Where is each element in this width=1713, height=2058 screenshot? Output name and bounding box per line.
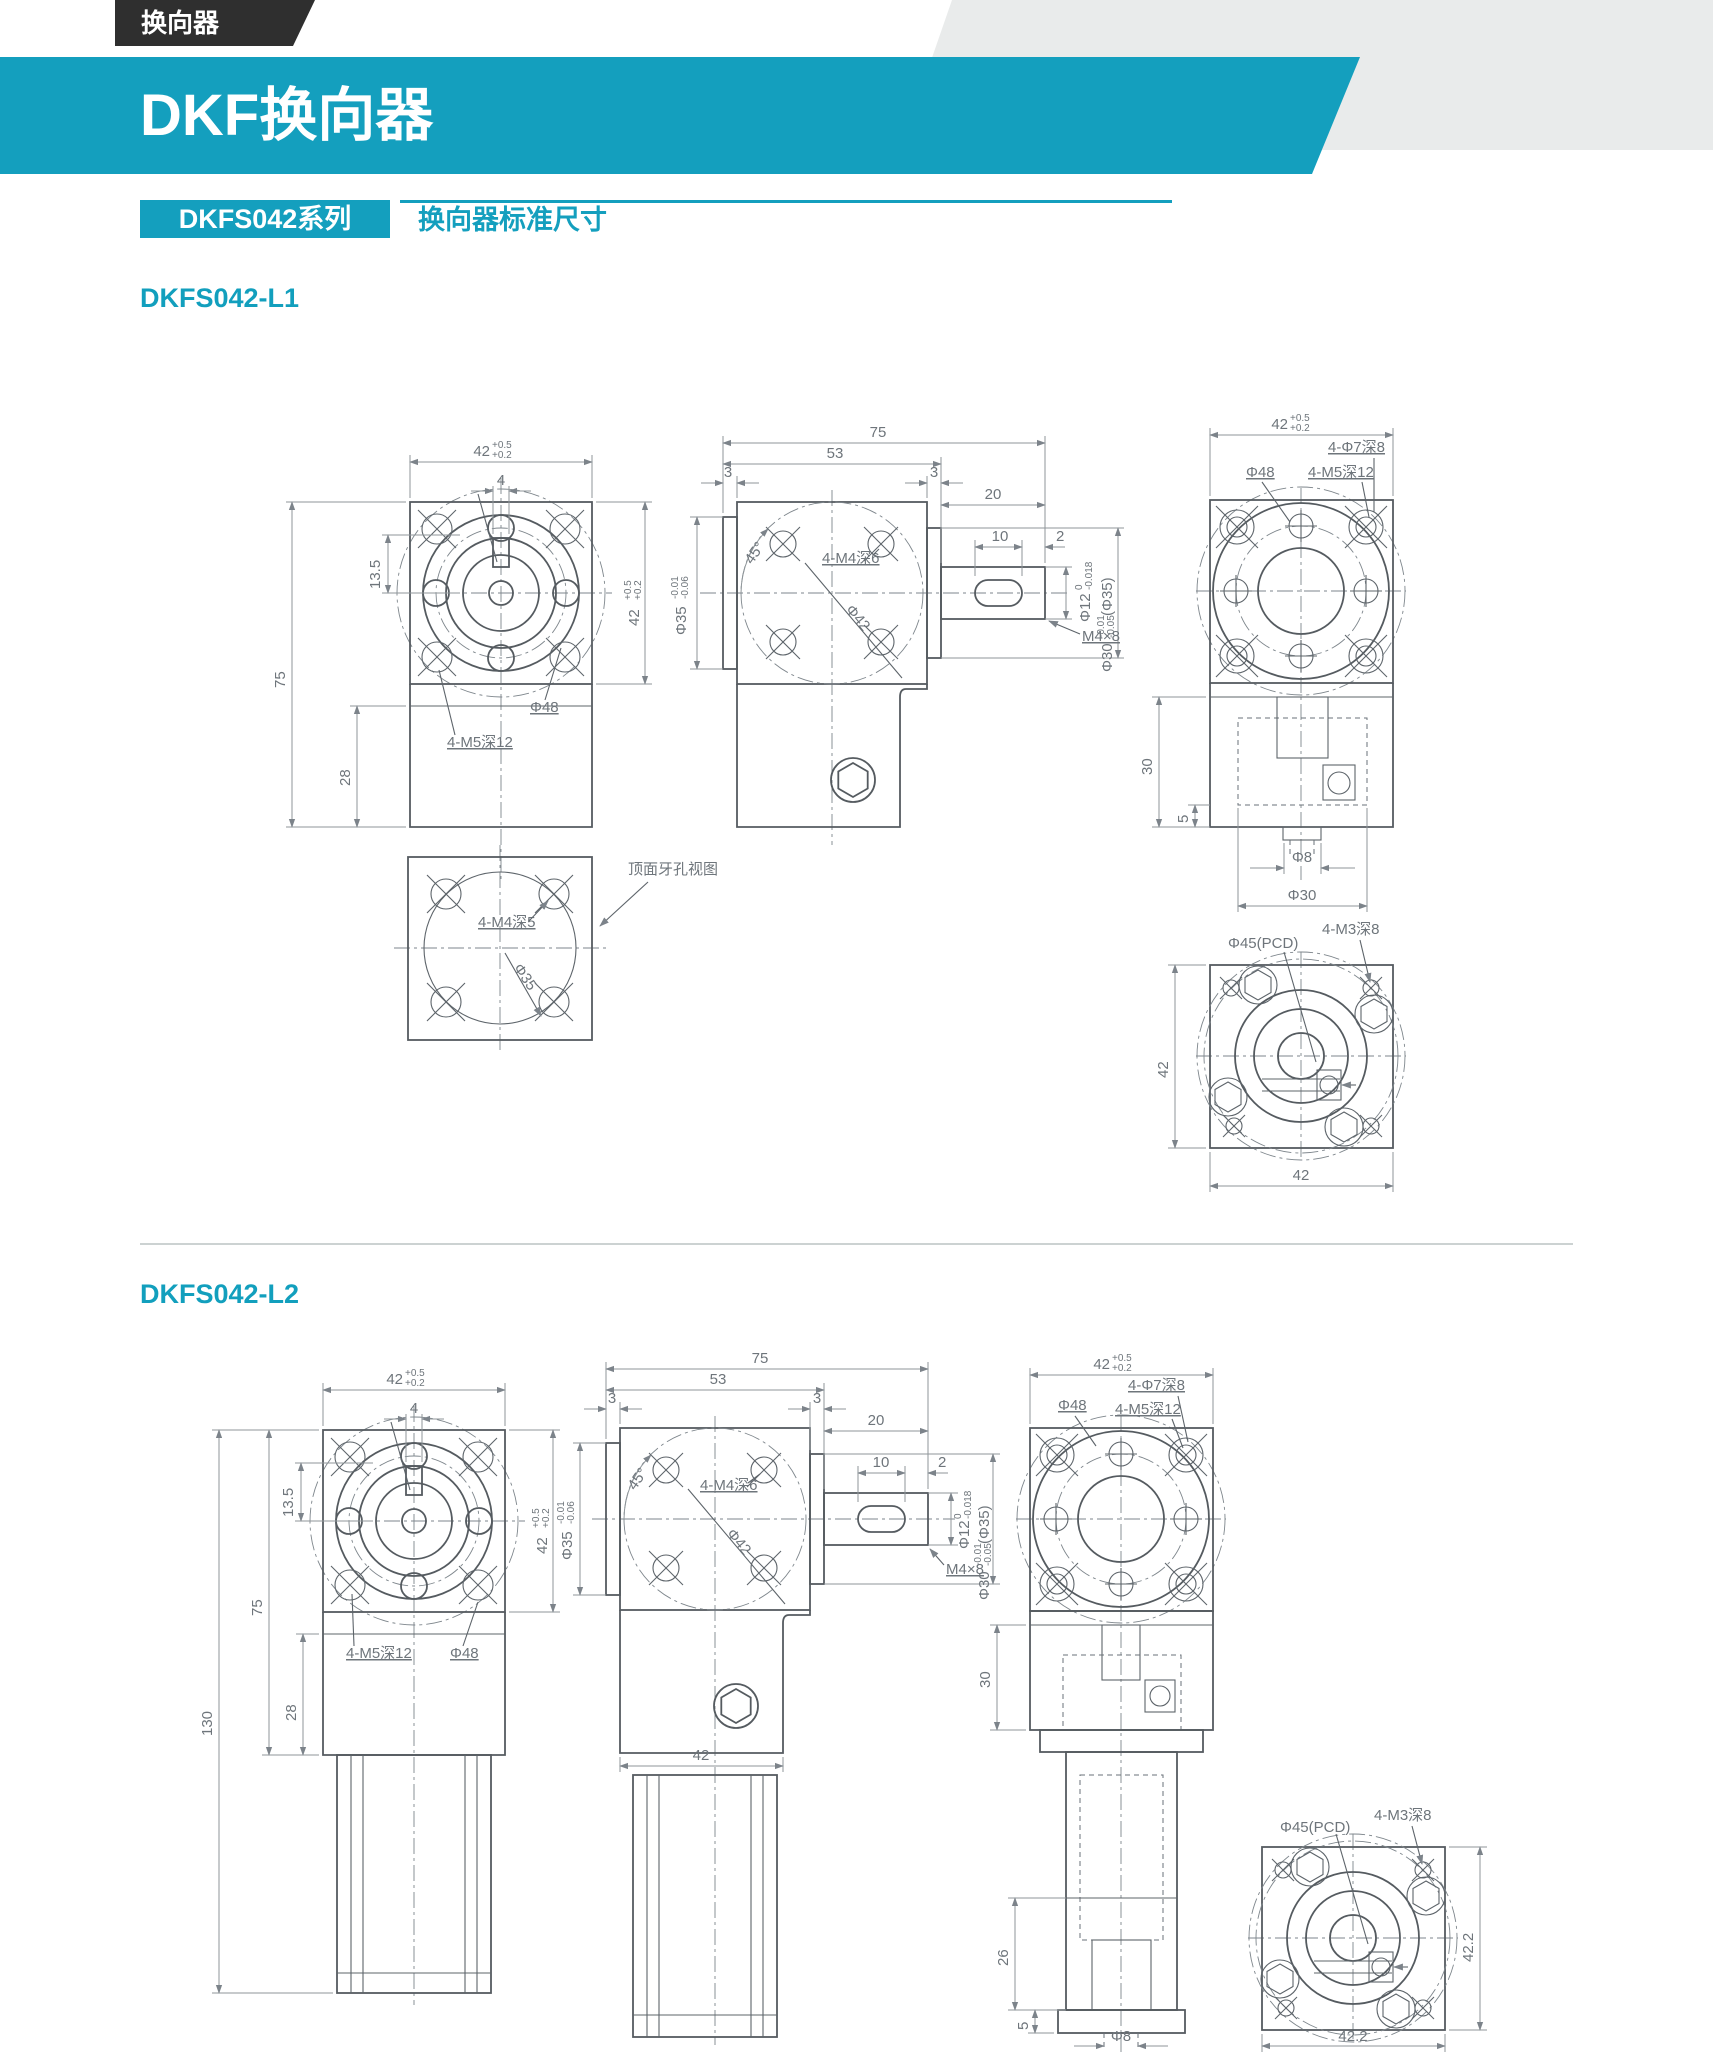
l1-output-view: 42 +0.5+0.2 Φ48 4-Φ7深8 4-M5深12 30 5 Φ8 Φ… xyxy=(1139,413,1406,912)
dim-phi12: Φ12 xyxy=(956,1520,973,1549)
svg-text:-0.018: -0.018 xyxy=(963,1490,974,1519)
svg-text:+0.2: +0.2 xyxy=(1290,423,1310,434)
svg-text:+0.2: +0.2 xyxy=(405,1378,425,1389)
dim-42: 42 xyxy=(473,443,490,460)
dim-10: 10 xyxy=(873,1454,890,1471)
dim-3l: 3 xyxy=(608,1390,616,1407)
dim-phi8: Φ8 xyxy=(1292,849,1312,866)
label-phi45pcd: Φ45(PCD) xyxy=(1280,1819,1350,1836)
dim-28: 28 xyxy=(337,769,354,786)
page-title: DKF换向器 xyxy=(0,57,1360,174)
dim-5: 5 xyxy=(1175,815,1192,823)
label-phi48: Φ48 xyxy=(1058,1397,1087,1414)
label-m4x8: M4×8 xyxy=(1082,628,1120,645)
label-m5d12: 4-M5深12 xyxy=(1308,464,1374,481)
l2-output-view: 42 +0.5+0.2 Φ48 4-Φ7深8 4-M5深12 30 26 5 Φ… xyxy=(977,1353,1226,2052)
dim-42v: 42 xyxy=(534,1537,551,1554)
dim-5: 5 xyxy=(1015,2022,1032,2030)
dim-phi8: Φ8 xyxy=(1111,2028,1131,2045)
label-m5-holes: 4-M5深12 xyxy=(447,734,513,751)
dim-75: 75 xyxy=(870,424,887,441)
dim-42: 42 xyxy=(1093,1356,1110,1373)
l1-coupling-view: Φ45(PCD) 4-M3深8 42 42 xyxy=(1155,921,1406,1192)
label-m4x8: M4×8 xyxy=(946,1561,984,1578)
svg-text:-0.018: -0.018 xyxy=(1084,561,1095,590)
page: 换向器 DKF换向器 DKFS042系列 换向器标准尺寸 DKFS042-L1 … xyxy=(0,0,1713,2058)
dim-3r: 3 xyxy=(930,464,938,481)
label-m4d5: 4-M4深5 xyxy=(478,914,536,931)
label-p7d8: 4-Φ7深8 xyxy=(1328,439,1385,456)
dim-75: 75 xyxy=(249,1599,266,1616)
angle-45: 45° xyxy=(624,1465,651,1493)
dim-75: 75 xyxy=(752,1350,769,1367)
header-tab: 换向器 xyxy=(115,0,315,46)
dim-42v: 42 xyxy=(626,609,643,626)
l2-side-view: 45° 4-M4深6 Φ42 75 53 3 3 xyxy=(556,1350,1000,2045)
dim-3r: 3 xyxy=(813,1390,821,1407)
l1-topface-view: 4-M4深5 Φ35 顶面牙孔视图 xyxy=(394,845,718,1053)
dim-30: 30 xyxy=(1139,758,1156,775)
dim-42v: 42 xyxy=(1155,1061,1172,1078)
dim-30: 30 xyxy=(977,1671,994,1688)
header-band: DKF换向器 xyxy=(0,57,1360,174)
dim-75: 75 xyxy=(272,671,289,688)
section-subtitle: 换向器标准尺寸 xyxy=(400,200,1172,238)
dim-phi35-ref: (Φ35) xyxy=(1099,577,1116,616)
dim-28: 28 xyxy=(283,1704,300,1721)
label-p7d8: 4-Φ7深8 xyxy=(1128,1377,1185,1394)
section-divider xyxy=(140,1243,1573,1245)
dim-phi35: Φ35 xyxy=(559,1531,576,1560)
dim-42b: 42 xyxy=(1293,1167,1310,1184)
dim-13-5: 13.5 xyxy=(280,1488,297,1517)
section-header: DKFS042系列 换向器标准尺寸 xyxy=(140,200,1172,238)
dim-phi30: Φ30 xyxy=(1288,887,1317,904)
label-m4d6: 4-M4深6 xyxy=(822,550,880,567)
dim-42-2v: 42.2 xyxy=(1460,1933,1477,1962)
dim-130: 130 xyxy=(199,1711,216,1736)
dim-42-2b: 42.2 xyxy=(1338,2028,1367,2045)
dim-42: 42 xyxy=(1271,416,1288,433)
l2-coupling-view: Φ45(PCD) 4-M3深8 42.2 42.2 xyxy=(1248,1807,1487,2052)
dim-20: 20 xyxy=(868,1412,885,1429)
dim-phi35-ref: (Φ35) xyxy=(976,1505,993,1544)
dim-3l: 3 xyxy=(724,464,732,481)
drawing-l1: 42 +0.5 +0.2 4 13.5 75 28 Φ48 4-M5深12 42… xyxy=(0,330,1713,1243)
angle-45: 45° xyxy=(741,539,768,567)
label-phi48: Φ48 xyxy=(1246,464,1275,481)
label-phi48: Φ48 xyxy=(530,699,559,716)
label-phi45pcd: Φ45(PCD) xyxy=(1228,935,1298,952)
label-m3d8: 4-M3深8 xyxy=(1374,1807,1432,1824)
dim-phi12: Φ12 xyxy=(1077,593,1094,622)
dim-4: 4 xyxy=(497,472,505,489)
tol-inf: +0.2 xyxy=(492,450,512,461)
note-topface: 顶面牙孔视图 xyxy=(628,861,718,878)
l1-front-view: 42 +0.5 +0.2 4 13.5 75 28 Φ48 4-M5深12 42… xyxy=(272,440,652,880)
label-m5d12: 4-M5深12 xyxy=(1115,1401,1181,1418)
l1-side-view: 45° 4-M4深6 Φ42 75 53 3 3 20 xyxy=(670,424,1124,845)
svg-text:+0.2: +0.2 xyxy=(1112,1363,1132,1374)
l2-heading: DKFS042-L2 xyxy=(140,1279,299,1310)
dim-20: 20 xyxy=(985,486,1002,503)
dim-4: 4 xyxy=(410,1400,418,1417)
dim-53: 53 xyxy=(827,445,844,462)
label-m4d6: 4-M4深6 xyxy=(700,1477,758,1494)
svg-text:+0.2: +0.2 xyxy=(633,580,644,600)
dim-2: 2 xyxy=(1056,528,1064,545)
svg-text:-0.06: -0.06 xyxy=(680,576,691,599)
l1-heading: DKFS042-L1 xyxy=(140,283,299,314)
label-m3d8: 4-M3深8 xyxy=(1322,921,1380,938)
series-badge: DKFS042系列 xyxy=(140,200,390,238)
dim-10: 10 xyxy=(992,528,1009,545)
label-phi35: Φ35 xyxy=(510,961,540,994)
svg-text:+0.2: +0.2 xyxy=(541,1508,552,1528)
label-m5d12: 4-M5深12 xyxy=(346,1645,412,1662)
dim-42: 42 xyxy=(386,1371,403,1388)
l2-front-view: 42 +0.5+0.2 4 13.5 75 130 28 4-M5深12 Φ48 xyxy=(199,1368,560,2005)
dim-2: 2 xyxy=(938,1454,946,1471)
header-tab-label: 换向器 xyxy=(141,8,219,38)
dim-53: 53 xyxy=(710,1371,727,1388)
label-phi48: Φ48 xyxy=(450,1645,479,1662)
svg-text:-0.06: -0.06 xyxy=(566,1501,577,1524)
dim-phi35: Φ35 xyxy=(673,606,690,635)
dim-phi30: Φ30 xyxy=(1099,643,1116,672)
dim-42b: 42 xyxy=(693,1747,710,1764)
drawing-l2: 42 +0.5+0.2 4 13.5 75 130 28 4-M5深12 Φ48 xyxy=(0,1343,1713,2058)
svg-text:-0.05: -0.05 xyxy=(983,1543,994,1566)
dim-26: 26 xyxy=(995,1949,1012,1966)
dim-13-5: 13.5 xyxy=(367,560,384,589)
